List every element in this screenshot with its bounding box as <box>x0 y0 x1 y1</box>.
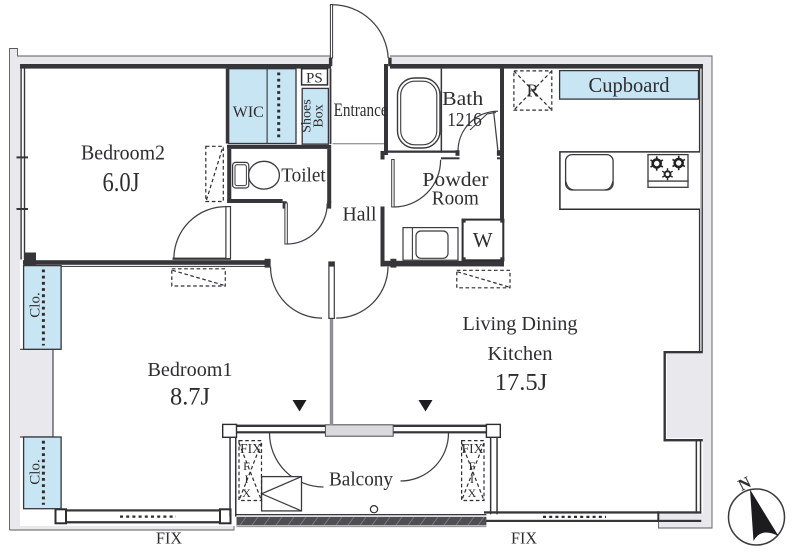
svg-text:1216: 1216 <box>447 109 482 131</box>
svg-text:X: X <box>242 486 251 500</box>
svg-text:Living Dining: Living Dining <box>463 313 578 335</box>
svg-text:PS: PS <box>306 71 323 87</box>
svg-text:FIX: FIX <box>240 441 262 456</box>
svg-text:Room: Room <box>432 188 479 210</box>
svg-text:Box: Box <box>312 104 327 127</box>
svg-text:F: F <box>469 459 476 473</box>
svg-text:Clo.: Clo. <box>28 292 44 317</box>
svg-text:R: R <box>527 81 539 101</box>
svg-text:Cupboard: Cupboard <box>589 73 670 97</box>
svg-text:Clo.: Clo. <box>28 459 44 484</box>
svg-text:Bedroom1: Bedroom1 <box>148 359 233 381</box>
svg-text:Toilet: Toilet <box>281 165 326 187</box>
svg-text:Balcony: Balcony <box>329 469 393 491</box>
svg-text:Hall: Hall <box>343 204 377 226</box>
svg-text:Bedroom2: Bedroom2 <box>81 141 165 165</box>
svg-text:Bath: Bath <box>442 88 483 110</box>
svg-text:I: I <box>245 472 249 486</box>
svg-text:F: F <box>243 459 250 473</box>
svg-text:W: W <box>473 228 493 252</box>
svg-text:FIX: FIX <box>511 529 537 548</box>
svg-text:Entrance: Entrance <box>334 100 388 121</box>
svg-text:FIX: FIX <box>462 441 484 456</box>
svg-text:WIC: WIC <box>233 104 264 121</box>
svg-text:Kitchen: Kitchen <box>488 343 553 365</box>
svg-text:X: X <box>468 486 477 500</box>
svg-text:8.7J: 8.7J <box>170 384 210 411</box>
svg-text:6.0J: 6.0J <box>103 167 140 197</box>
svg-text:17.5J: 17.5J <box>495 370 548 396</box>
svg-text:FIX: FIX <box>156 529 182 548</box>
svg-text:I: I <box>470 472 474 486</box>
